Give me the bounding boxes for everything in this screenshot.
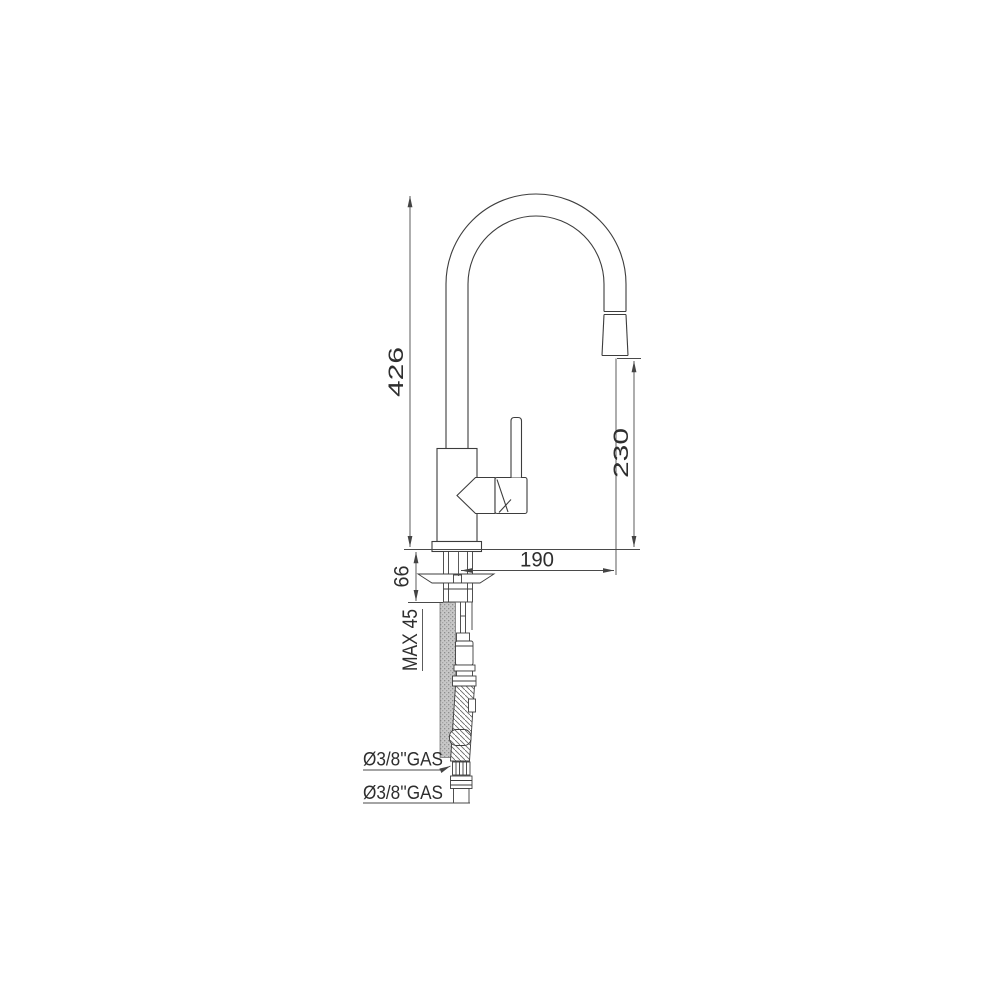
handle-rod — [511, 418, 522, 478]
label-max-deck-thickness: MAX 45 — [399, 609, 422, 671]
drawing-page: 426 230 190 66 MAX 45 Ø3/8''GAS Ø3/8''GA… — [0, 0, 1000, 1000]
threaded-stud — [453, 603, 477, 687]
faucet-technical-drawing: 426 230 190 66 MAX 45 Ø3/8''GAS Ø3/8''GA… — [0, 0, 1000, 1000]
label-outlet-height: 230 — [610, 428, 633, 478]
spout-arch — [446, 194, 626, 449]
mounting-nut — [444, 583, 473, 602]
label-spray-hose-connection: Ø3/8''GAS — [363, 750, 443, 771]
label-shank-length: 66 — [391, 566, 414, 588]
faucet-outline — [432, 194, 628, 552]
hose-ferrule — [450, 730, 472, 746]
label-spout-reach: 190 — [520, 549, 554, 572]
label-supply-hose-connection: Ø3/8''GAS — [363, 783, 443, 804]
mounting-washer — [418, 574, 494, 583]
base-flange — [432, 542, 482, 552]
handle-lever — [495, 418, 527, 514]
hose-connector — [451, 762, 473, 803]
dimension-text: 426 230 190 66 MAX 45 Ø3/8''GAS Ø3/8''GA… — [363, 347, 633, 804]
label-total-height: 426 — [385, 347, 408, 397]
pullout-spray-head — [602, 312, 628, 356]
connector-nut — [451, 776, 473, 789]
connector-tube — [454, 789, 470, 804]
